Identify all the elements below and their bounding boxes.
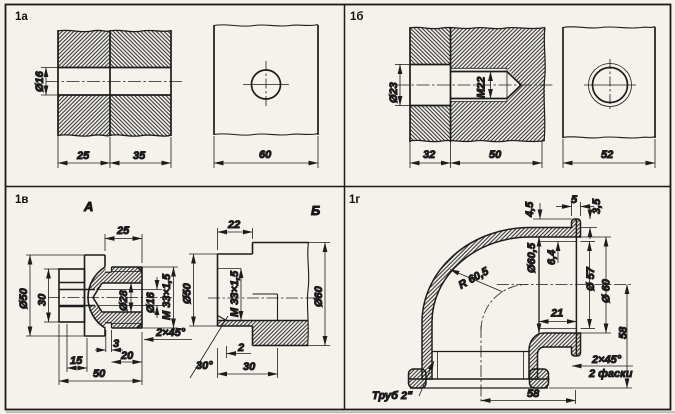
svg-text:52: 52	[601, 149, 613, 161]
svg-text:Ø50: Ø50	[182, 282, 194, 304]
svg-text:50: 50	[489, 149, 502, 161]
svg-text:Ø 57: Ø 57	[585, 266, 597, 291]
svg-text:20: 20	[120, 350, 134, 362]
svg-text:2×45°: 2×45°	[155, 327, 186, 339]
svg-text:1г: 1г	[349, 194, 360, 206]
svg-text:50: 50	[93, 368, 106, 380]
svg-text:2: 2	[237, 342, 244, 354]
svg-text:4,5: 4,5	[524, 201, 536, 218]
svg-text:Ø60: Ø60	[313, 285, 325, 307]
svg-text:32: 32	[423, 149, 435, 161]
svg-text:60: 60	[259, 149, 272, 161]
svg-text:1в: 1в	[15, 194, 28, 206]
svg-text:Ø28: Ø28	[118, 289, 130, 311]
svg-text:Ø50: Ø50	[18, 287, 30, 309]
svg-text:Ø 60: Ø 60	[601, 278, 613, 303]
svg-text:1б: 1б	[350, 11, 364, 23]
svg-text:Труб 2": Труб 2"	[372, 390, 413, 402]
svg-text:2 фаски: 2 фаски	[588, 368, 633, 380]
svg-text:30: 30	[37, 293, 49, 306]
svg-text:Ø60,5: Ø60,5	[526, 242, 538, 273]
svg-text:58: 58	[527, 388, 540, 400]
svg-text:21: 21	[550, 308, 563, 320]
svg-text:5: 5	[571, 194, 578, 206]
svg-text:22: 22	[227, 219, 240, 231]
svg-text:Ø16: Ø16	[145, 291, 157, 313]
svg-text:М 33×1,5: М 33×1,5	[161, 273, 173, 320]
svg-text:Ø16: Ø16	[34, 70, 46, 92]
svg-text:3: 3	[113, 338, 119, 350]
svg-text:30: 30	[243, 361, 256, 373]
svg-text:30°: 30°	[196, 360, 213, 372]
svg-text:М22: М22	[476, 77, 488, 98]
svg-text:25: 25	[76, 150, 90, 162]
svg-text:А: А	[83, 199, 93, 214]
svg-text:3,5: 3,5	[591, 198, 603, 214]
svg-text:Ø23: Ø23	[388, 82, 400, 103]
svg-text:Б: Б	[311, 203, 320, 218]
svg-text:М 33×1,5: М 33×1,5	[229, 270, 241, 317]
svg-text:58: 58	[618, 326, 630, 339]
svg-text:25: 25	[116, 225, 130, 237]
svg-text:2×45°: 2×45°	[591, 354, 622, 366]
svg-text:15: 15	[70, 355, 83, 367]
svg-text:35: 35	[133, 150, 146, 162]
svg-text:1а: 1а	[15, 11, 28, 23]
svg-text:6,4: 6,4	[546, 250, 558, 265]
